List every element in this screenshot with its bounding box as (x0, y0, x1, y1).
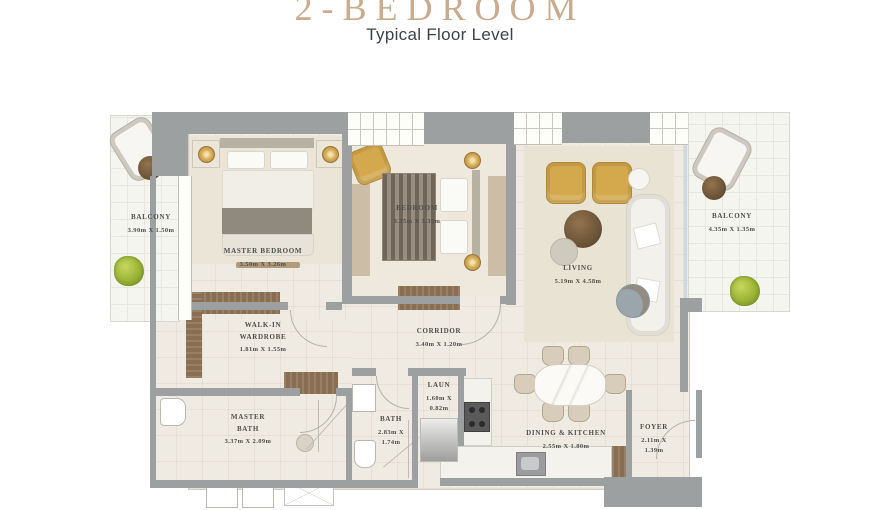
wall-segment (424, 112, 514, 144)
ottoman-icon (616, 284, 650, 318)
wall-segment (500, 296, 516, 304)
room-label-master-bath: MASTER BATH 3.37m X 2.09m (208, 412, 288, 448)
room-name: DINING & KITCHEN (506, 428, 626, 440)
dining-table-icon (534, 364, 606, 406)
wall-segment (506, 143, 516, 305)
room-name: MASTER BEDROOM (193, 246, 333, 258)
room-dims: 2.11m X 1.39m (637, 436, 671, 457)
chair-icon (542, 346, 564, 366)
sink-icon (516, 452, 546, 476)
floorplan-page: 2-BEDROOM Typical Floor Level (0, 0, 880, 510)
room-dims: 1.81m X 1.55m (224, 345, 302, 356)
room-name: CORRIDOR (396, 326, 482, 338)
room-label-bedroom: BEDROOM 3.35m X 3.35m (379, 203, 455, 227)
room-label-dining-kitchen: DINING & KITCHEN 2.55m X 1.80m (506, 428, 626, 452)
room-dims: 2.55m X 1.80m (506, 442, 626, 453)
wall-segment (326, 302, 342, 310)
plant-icon (730, 276, 760, 306)
room-name: LAUN (420, 380, 458, 392)
wall-segment (342, 296, 460, 304)
room-label-balcony-right: BALCONY 4.35m X 1.35m (688, 211, 776, 235)
room-label-walkin-wardrobe: WALK-IN WARDROBE 1.81m X 1.55m (224, 320, 302, 356)
balcony-glass-door (684, 143, 687, 303)
room-dims: 5.19m X 4.58m (532, 277, 624, 288)
wall-segment (152, 134, 188, 176)
room-name: FOYER (632, 422, 676, 434)
side-table-icon (628, 168, 650, 190)
room-dims: 3.35m X 3.35m (379, 217, 455, 228)
washer-icon (420, 418, 458, 462)
nightstand-icon (192, 140, 220, 168)
room-label-laundry: LAUN 1.60m X 0.82m (420, 380, 458, 415)
stove-icon (464, 402, 490, 432)
wall-segment (412, 376, 418, 480)
wall-segment (604, 477, 702, 507)
wall-segment (152, 112, 348, 134)
room-label-foyer: FOYER 2.11m X 1.39m (632, 422, 676, 457)
wall-segment (352, 368, 376, 376)
lamp-icon (198, 146, 215, 163)
headboard (472, 170, 480, 262)
plant-icon (114, 256, 144, 286)
pillow (270, 151, 308, 169)
room-name: BALCONY (688, 211, 776, 223)
wall-segment (150, 480, 346, 488)
room-name: BALCONY (108, 212, 194, 224)
lamp-icon (464, 254, 481, 271)
room-label-living: LIVING 5.19m X 4.58m (532, 263, 624, 287)
wall-segment (188, 302, 288, 310)
room-label-master-bedroom: MASTER BEDROOM 3.50m X 3.26m (193, 246, 333, 270)
wall-segment (342, 134, 352, 304)
wall-segment (696, 390, 702, 458)
pillow (227, 151, 265, 169)
nightstand-icon (316, 140, 344, 168)
wall-segment (680, 298, 702, 312)
bath-sink-icon (352, 384, 376, 412)
sheet (222, 170, 314, 210)
wall-segment (458, 376, 464, 446)
room-label-bath: BATH 2.83m X 1.74m (371, 414, 411, 449)
room-name: BATH (371, 414, 411, 426)
wall-segment (440, 478, 610, 486)
window (514, 112, 562, 145)
headboard (220, 138, 314, 148)
wall-segment (346, 480, 418, 488)
chair-icon (604, 374, 626, 394)
room-dims: 3.40m X 1.20m (396, 340, 482, 351)
room-dims: 2.83m X 1.74m (372, 428, 410, 449)
room-name: BEDROOM (379, 203, 455, 215)
room-name: LIVING (532, 263, 624, 275)
wall-segment (408, 368, 466, 376)
wall-segment (346, 388, 352, 480)
room-dims: 4.35m X 1.35m (688, 225, 776, 236)
window (650, 112, 688, 145)
room-label-corridor: CORRIDOR 3.40m X 1.20m (396, 326, 482, 350)
room-label-balcony-left: BALCONY 3.90m X 1.50m (108, 212, 194, 236)
room-name: MASTER BATH (228, 412, 268, 435)
room-name: WALK-IN WARDROBE (234, 320, 292, 343)
wardrobe-icon (488, 176, 506, 276)
coffee-table-icon (550, 238, 578, 266)
room-dims: 3.37m X 2.09m (208, 437, 288, 448)
lamp-icon (322, 146, 339, 163)
pillow (633, 222, 662, 249)
page-subtitle: Typical Floor Level (0, 25, 880, 45)
armchair-icon (592, 162, 632, 204)
lamp-icon (464, 152, 481, 169)
window (348, 112, 424, 146)
side-table-icon (702, 176, 726, 200)
toilet-icon (160, 398, 186, 426)
armchair-icon (546, 162, 586, 204)
wall-segment (562, 112, 650, 143)
room-dims: 1.60m X 0.82m (422, 394, 456, 415)
room-dims: 3.90m X 1.50m (108, 226, 194, 237)
wall-segment (680, 312, 688, 392)
bed-icon (220, 138, 314, 256)
wall-segment (150, 388, 300, 396)
blanket (222, 208, 312, 234)
chair-icon (514, 374, 536, 394)
window (178, 176, 192, 320)
chair-icon (568, 346, 590, 366)
room-dims: 3.50m X 3.26m (193, 260, 333, 271)
wardrobe-icon (352, 184, 370, 276)
